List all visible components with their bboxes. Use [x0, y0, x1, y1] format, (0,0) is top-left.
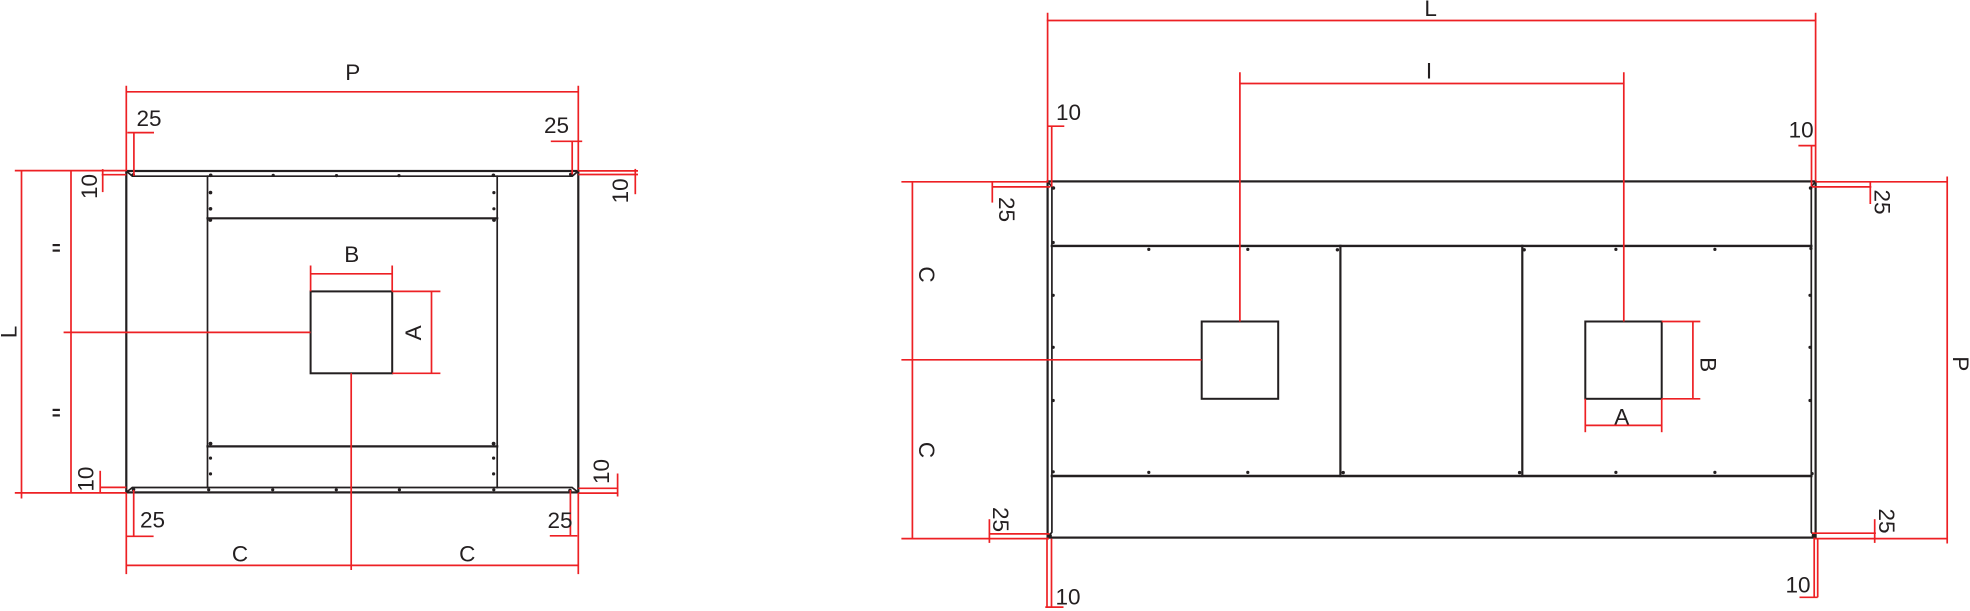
svg-text:C: C: [232, 542, 248, 567]
svg-text:C: C: [914, 442, 939, 458]
svg-text:25: 25: [988, 507, 1013, 532]
svg-text:25: 25: [544, 113, 569, 138]
svg-text:10: 10: [589, 459, 614, 484]
svg-text:A: A: [1614, 405, 1629, 430]
svg-text:A: A: [401, 325, 426, 340]
svg-text:25: 25: [994, 197, 1019, 222]
svg-text:10: 10: [74, 467, 99, 492]
svg-text:B: B: [1696, 357, 1721, 372]
svg-text:I: I: [1426, 59, 1432, 84]
svg-text:10: 10: [1785, 573, 1810, 598]
svg-text:10: 10: [1056, 585, 1081, 610]
svg-text:L: L: [1424, 0, 1437, 21]
svg-text:C: C: [914, 266, 939, 282]
svg-text:25: 25: [548, 508, 573, 533]
svg-text:B: B: [344, 242, 359, 267]
svg-text:10: 10: [1056, 100, 1081, 125]
svg-text:L: L: [0, 326, 22, 339]
svg-text:P: P: [1948, 356, 1970, 371]
svg-text:25: 25: [140, 508, 165, 533]
svg-text:25: 25: [1870, 189, 1895, 214]
svg-text:C: C: [459, 542, 475, 567]
svg-text:10: 10: [1789, 117, 1814, 142]
svg-text:10: 10: [77, 174, 102, 199]
svg-text:P: P: [345, 60, 360, 85]
svg-text:25: 25: [137, 106, 162, 131]
svg-text:25: 25: [1874, 508, 1899, 533]
svg-text:10: 10: [608, 178, 633, 203]
